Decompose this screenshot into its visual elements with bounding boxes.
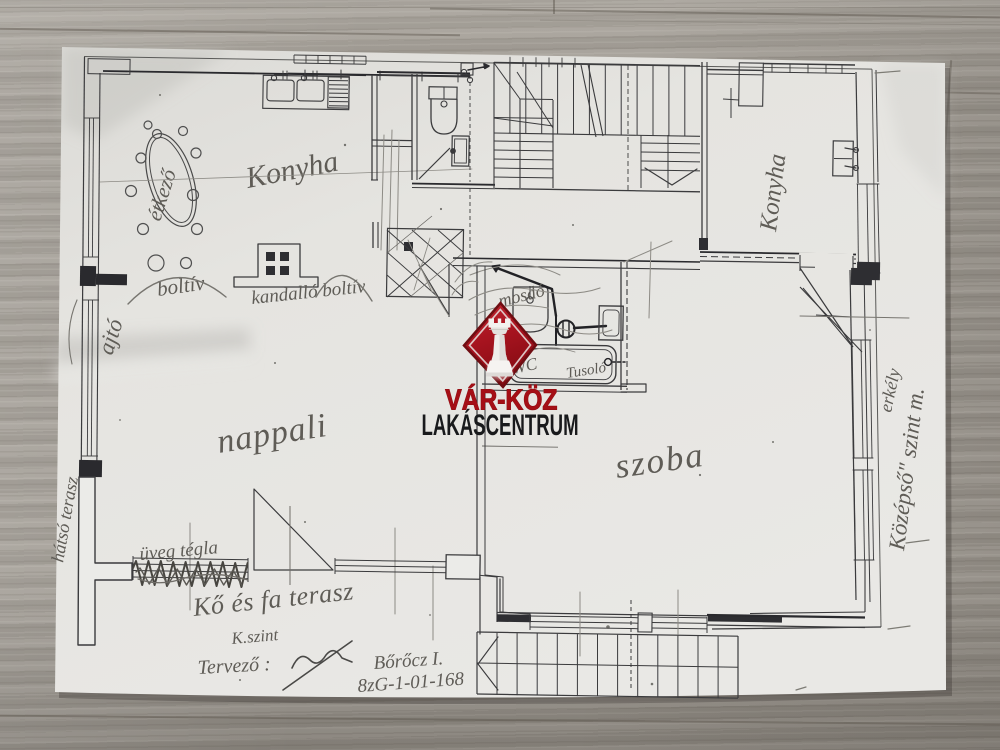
svg-text:Tervező :: Tervező : — [197, 653, 271, 679]
svg-text:LAKÁSCENTRUM: LAKÁSCENTRUM — [422, 409, 579, 442]
